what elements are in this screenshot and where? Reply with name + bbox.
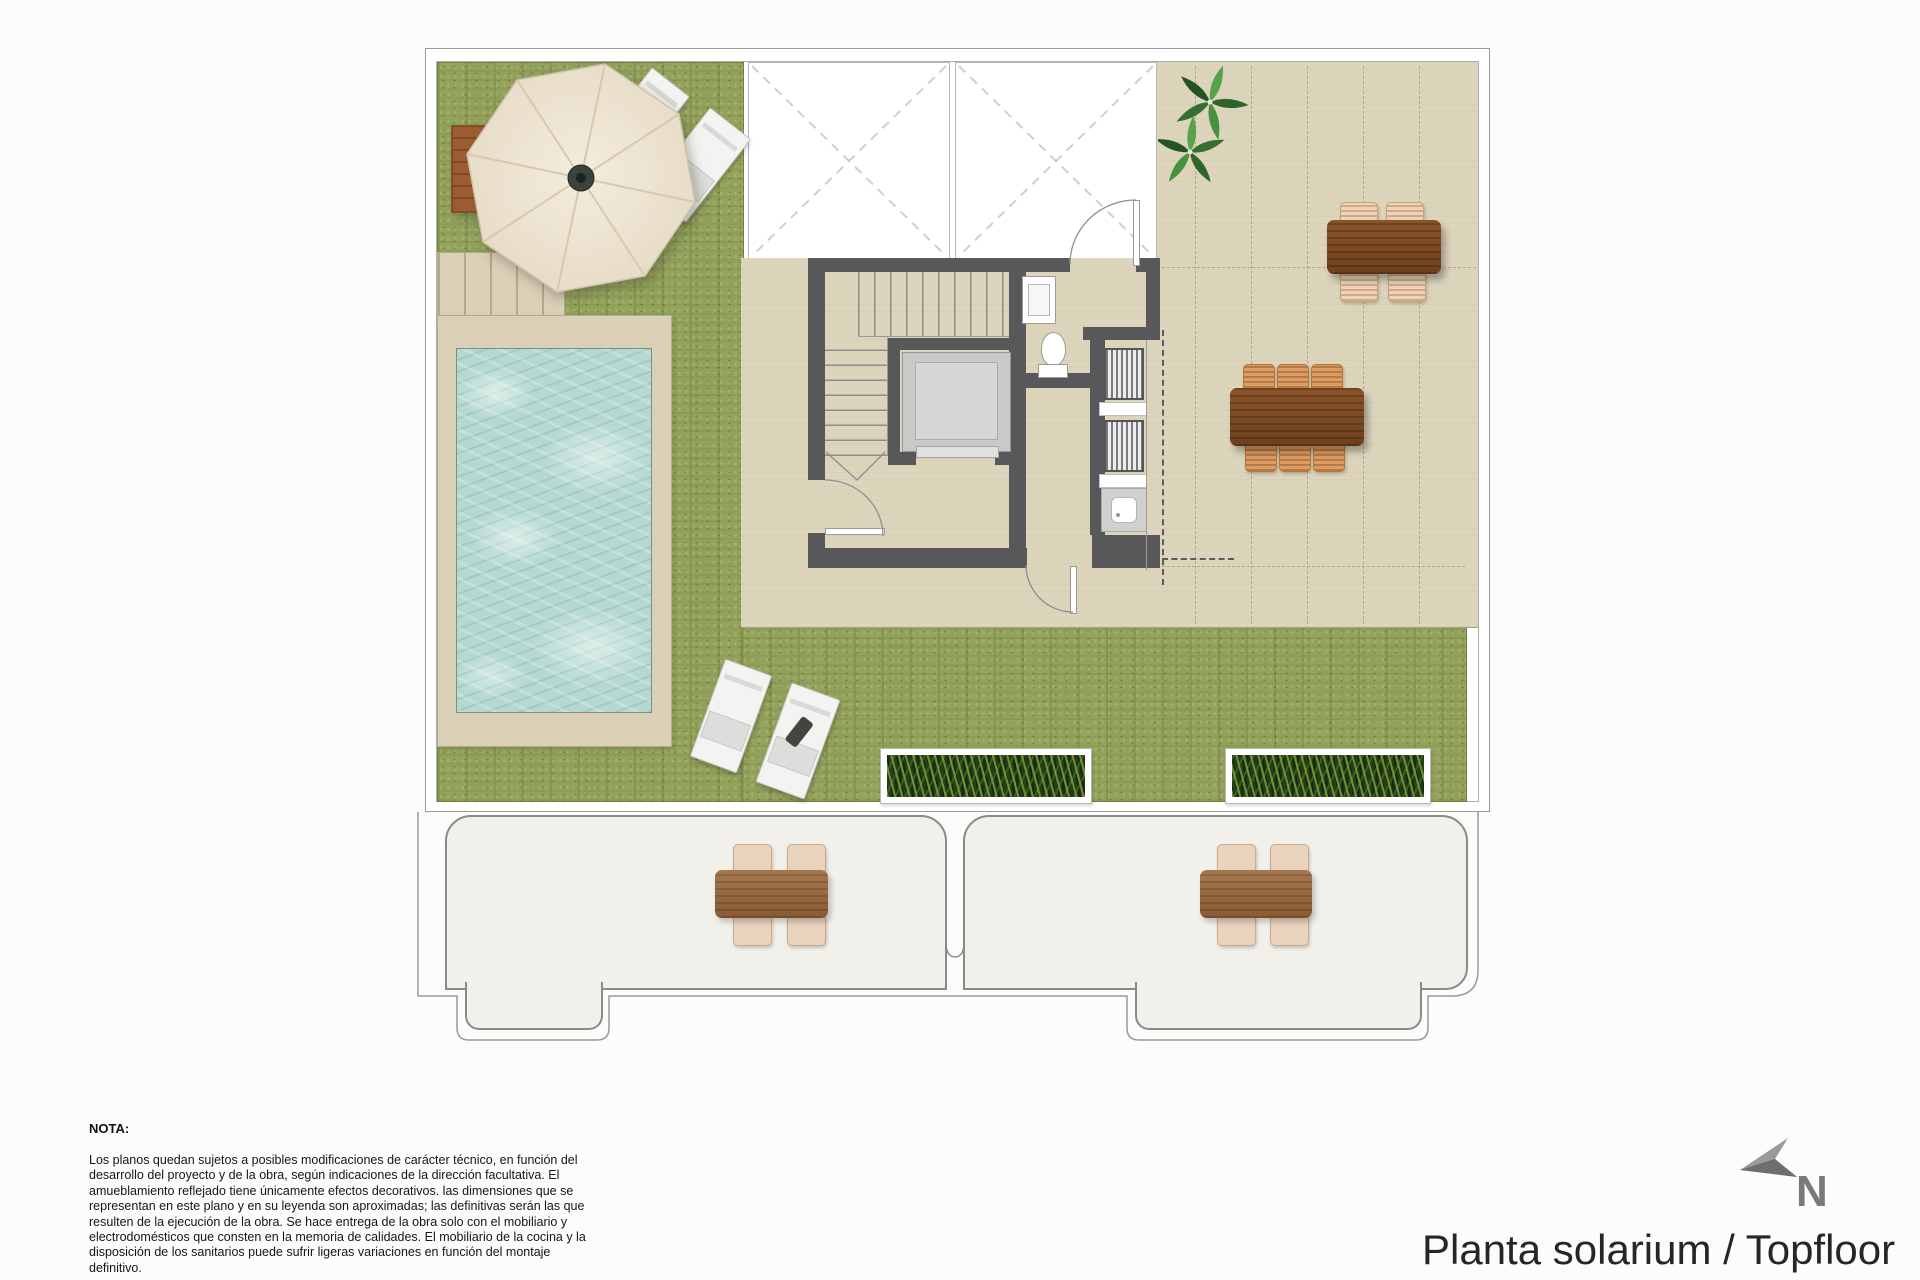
planter-right (1225, 748, 1431, 804)
umbrella-hub-center (576, 173, 586, 183)
skylight-cross-lines (956, 63, 1156, 259)
sink-drain (1116, 513, 1120, 517)
dining-table-4-top-right (1327, 220, 1441, 274)
terrace-bump-left-join (468, 980, 596, 988)
dining-table-4-lower-left (715, 870, 828, 918)
lower-terrace-left (445, 815, 947, 990)
door-leaf-wc (1133, 200, 1140, 266)
terrace-divider-notch (947, 949, 963, 957)
pergola-line (1419, 66, 1420, 624)
washbasin (1022, 276, 1056, 324)
wall-elevator-top (888, 338, 1025, 350)
floor-plan-sheet: NOTA: Los planos quedan sujetos a posibl… (0, 0, 1920, 1280)
closet-shelf-bottom (1099, 474, 1147, 488)
pergola-line-horizontal (1162, 566, 1465, 567)
north-arrow-dart-shade (1740, 1159, 1797, 1177)
parasol-umbrella (448, 50, 700, 300)
wall-elevator-right (1013, 338, 1025, 465)
toilet-tank (1038, 364, 1068, 378)
planter-left (880, 748, 1092, 804)
lounger-hinge (702, 122, 738, 152)
roof-edge-dashed (1162, 330, 1164, 585)
dining-chair (1270, 914, 1309, 946)
washbasin-bowl (1028, 284, 1050, 316)
north-label: N (1796, 1167, 1828, 1215)
potted-plant (1158, 60, 1318, 220)
utility-sink-cabinet (1101, 488, 1147, 532)
dining-chair (733, 914, 772, 946)
plant-leaf-cluster (1174, 65, 1249, 140)
dining-chair (1340, 270, 1378, 302)
towel (784, 716, 814, 748)
louver-unit-bottom (1104, 420, 1144, 472)
note-body: Los planos quedan sujetos a posibles mod… (89, 1153, 594, 1276)
utility-sink (1111, 497, 1137, 523)
toilet (1038, 332, 1068, 380)
skylight-cross-lines (749, 63, 949, 259)
terrace-bump-right-join (1138, 980, 1415, 988)
dining-chair (1217, 914, 1256, 946)
pergola-line (1363, 66, 1364, 624)
wall-elevator-left (888, 338, 900, 465)
door-leaf-corridor (1070, 566, 1077, 614)
dining-chair (787, 914, 826, 946)
north-arrow: N (1730, 1130, 1840, 1215)
planter-grasses (887, 755, 1085, 797)
elevator-door-sill (916, 446, 999, 458)
wall-elevator-bottom-right (995, 452, 1025, 465)
closet-front-line (1146, 340, 1147, 570)
stair-flight-top (858, 272, 1009, 337)
dining-table-4-lower-right (1200, 870, 1312, 918)
lounger-hinge (723, 674, 763, 693)
plan-title: Planta solarium / Topfloor (1422, 1226, 1895, 1274)
terrace-bump-left (465, 982, 603, 1030)
wall-core-left-upper (808, 258, 825, 480)
terrace-bump-right (1135, 982, 1422, 1030)
wall-elevator-bottom-left (888, 452, 916, 465)
stair-flight-left (825, 336, 888, 456)
skylight-panel-right (955, 62, 1157, 260)
door-leaf-lobby (825, 528, 885, 535)
note-heading: NOTA: (89, 1121, 129, 1136)
closet-shelf-top (1099, 402, 1147, 416)
planter-grasses (1232, 755, 1424, 797)
swimming-pool (456, 348, 652, 713)
lounger-hinge (790, 698, 831, 717)
elevator-cab-inner (915, 362, 998, 440)
skylight-panel-left (748, 62, 950, 260)
dining-table-6-right-terrace (1230, 388, 1364, 446)
wall-core-top (808, 258, 1070, 272)
wall-core-bottom (808, 548, 1027, 568)
toilet-bowl (1041, 332, 1066, 366)
wall-closet-bottom (1092, 535, 1160, 568)
louver-unit-top (1104, 348, 1144, 400)
wall-closet-top (1083, 327, 1160, 340)
wall-wc-right (1146, 272, 1160, 327)
lounger-cushion (701, 711, 751, 752)
roof-edge-dashed-horizontal (1162, 558, 1234, 560)
dining-chair (1388, 270, 1426, 302)
